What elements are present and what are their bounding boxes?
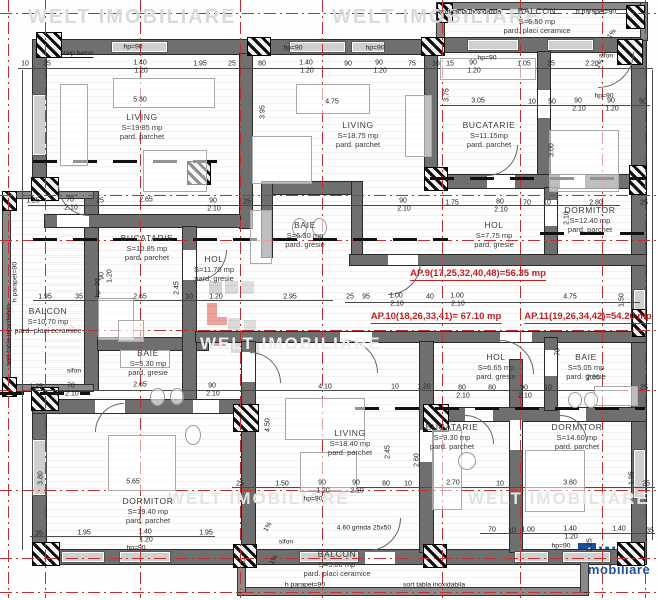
dimension-label: 2.10	[572, 106, 586, 113]
dimension-label: 4.75	[325, 99, 339, 106]
furniture	[405, 95, 432, 157]
furniture	[143, 150, 207, 192]
room-area: S=14.60 mp	[552, 433, 603, 442]
dimension-label: 40	[426, 294, 434, 301]
wall	[352, 182, 362, 257]
room-floor-finish: pard. placi ceramice	[303, 569, 370, 578]
room-floor-finish: pard. parchet	[123, 516, 174, 525]
room-floor-finish: pard. gresie	[474, 240, 514, 249]
window-opening	[120, 552, 170, 562]
dimension-label: 2.65	[133, 294, 147, 301]
dimension-label: 25	[640, 385, 648, 392]
room-label: BUCATARIES=10.85 mppard. parchet	[121, 233, 174, 262]
dimension-label: 80	[488, 385, 496, 392]
dimension-label: 5.30	[133, 97, 147, 104]
annotation-label: stalp beton	[60, 50, 93, 58]
dimension-label: 25	[243, 199, 251, 206]
dimension-label: 90	[209, 198, 217, 205]
room-floor-finish: pard. gresie	[194, 274, 234, 283]
room-label: BALCONS=6.50 mppard. placi ceramice	[503, 6, 570, 35]
room-label: LIVINGS=18.75 mppard. parchet	[336, 120, 380, 149]
concrete-column	[422, 38, 444, 55]
room-area: S=19.85 mp	[120, 123, 164, 132]
dimension-label: 2.80	[589, 200, 603, 207]
dimension-label: 1.05	[517, 61, 531, 68]
dimension-label: 90	[520, 385, 528, 392]
section-line	[33, 238, 448, 241]
dimension-label: 90	[352, 480, 360, 487]
dimension-label: 90	[375, 60, 383, 67]
concrete-column	[33, 543, 59, 565]
dimension-label: 3.80	[38, 471, 45, 485]
fixture	[458, 452, 476, 470]
dimension-label: 1.25	[587, 538, 594, 552]
fixture	[150, 388, 165, 406]
annotation-label: hp=90	[594, 93, 613, 100]
dimension-label: 80	[458, 385, 466, 392]
room-label: DORMITORS=14.60 mppard. parchet	[552, 422, 603, 451]
room-floor-finish: pard. placi ceramice	[14, 326, 81, 335]
room-name: LIVING	[336, 120, 380, 131]
room-label: BALCONS=9.00 mppard. placi ceramice	[303, 549, 370, 578]
dimension-label: 25	[642, 481, 650, 488]
dimension-label: 2.10	[494, 207, 508, 214]
room-area: S=9.30 mp	[426, 433, 479, 442]
dimension-label: 2.70	[446, 480, 460, 487]
room-label: BUCATARIES=11.15mppard. parchet	[463, 120, 516, 149]
dimension-label: 2.10	[350, 488, 364, 495]
concrete-column	[627, 6, 644, 28]
dimension-label: 10	[496, 481, 504, 488]
dimension-label: 15	[446, 61, 454, 68]
concrete-column	[37, 33, 61, 57]
room-name: DORMITOR	[565, 205, 616, 216]
dimension-label: 90	[344, 61, 352, 68]
dimension-label: 2.10	[564, 211, 571, 225]
dimension-label: 10	[528, 99, 536, 106]
room-label: LIVINGS=18.40 mppard. parchet	[328, 428, 372, 457]
dimension-label: 1.20	[467, 68, 481, 75]
dimension-label: 70	[67, 383, 75, 390]
dimension-label: 1.40	[563, 526, 577, 533]
room-label: BAIES=6.30 mppard. gresie	[285, 220, 325, 249]
furniture	[60, 84, 88, 166]
dimension-label: 90	[208, 383, 216, 390]
dimension-label: 1.95	[629, 471, 636, 485]
window-opening	[62, 552, 104, 562]
room-floor-finish: pard. gresie	[128, 368, 168, 377]
dimension-label: 1.20	[139, 537, 153, 544]
dimension-label: 10	[21, 61, 29, 68]
watermark-text: WELT IMOBILIARE	[28, 6, 237, 29]
window-opening	[548, 40, 593, 50]
room-area: S=6.50 mp	[503, 17, 570, 26]
dimension-label: 1.95	[77, 530, 91, 537]
room-area: S=7.75 mp	[474, 231, 514, 240]
dimension-label: 1.00	[450, 293, 464, 300]
room-label: HOLS=11.70 mppard. gresie	[194, 254, 234, 283]
dimension-label: 2.10	[451, 301, 465, 308]
room-name: BALCON	[303, 549, 370, 560]
dimension-label: 1.95	[193, 61, 207, 68]
annotation-label: sort tabla inoxidabila	[6, 304, 13, 366]
section-line	[355, 407, 645, 410]
dimension-line	[30, 536, 215, 537]
room-area: S=6.30 mp	[285, 231, 325, 240]
dimension-line	[18, 68, 653, 69]
dimension-label: 95	[362, 294, 370, 301]
dimension-label: 70	[488, 527, 496, 534]
room-name: DORMITOR	[123, 496, 174, 507]
room-label: DORMITORS=12.40 mppard. parchet	[565, 205, 616, 234]
room-floor-finish: pard. parchet	[463, 140, 516, 149]
annotation-label: hp=90	[303, 496, 322, 503]
dimension-label: 1.40	[299, 60, 313, 67]
dimension-label: 90	[318, 480, 326, 487]
dimension-label: 70	[523, 200, 531, 207]
annotation-label: hp=90	[126, 545, 145, 552]
annotation-label: h parapet=90	[576, 9, 616, 16]
dimension-label: 5.65	[126, 479, 140, 486]
dimension-label: 1.20	[107, 269, 114, 283]
dimension-label: 10	[404, 481, 412, 488]
dimension-label: 4.75	[563, 294, 577, 301]
dimension-label: 25	[43, 61, 51, 68]
room-name: HOL	[474, 220, 514, 231]
room-label: HOLS=6.65 mppard. gresie	[476, 352, 516, 381]
dimension-label: 25	[236, 481, 244, 488]
dimension-label: 1.20	[605, 106, 619, 113]
dimension-label: 2.65	[139, 197, 153, 204]
room-floor-finish: pard. parchet	[120, 132, 164, 141]
dimension-label: 4.10	[318, 384, 332, 391]
room-name: DORMITOR	[552, 422, 603, 433]
dimension-label: 80	[382, 481, 390, 488]
dimension-label: 3.05	[471, 98, 485, 105]
room-name: BALCON	[14, 306, 81, 317]
room-area: S=18.75 mp	[336, 131, 380, 140]
dimension-label: 25	[96, 198, 104, 205]
room-name: HOL	[194, 254, 234, 265]
room-area: S=11.70 mp	[194, 265, 234, 274]
dimension-label: 70	[555, 348, 562, 356]
dimension-label: 10	[544, 385, 552, 392]
door-gap	[193, 400, 219, 413]
room-name: BUCATARIE	[426, 422, 479, 433]
furniture	[252, 136, 312, 184]
annotation-label: hp=90	[477, 55, 496, 62]
dimension-label: 1.00	[521, 527, 535, 534]
room-area: S=19.40 mp	[123, 507, 174, 516]
dimension-label: 1.40	[612, 526, 626, 533]
room-name: BALCON	[503, 6, 570, 17]
concrete-column	[234, 405, 258, 431]
room-floor-finish: pard. parchet	[121, 253, 174, 262]
fixture	[568, 392, 582, 408]
room-floor-finish: pard. parchet	[328, 448, 372, 457]
room-name: LIVING	[328, 428, 372, 439]
dimension-label: 4.50	[265, 418, 272, 432]
room-floor-finish: pard. gresie	[476, 372, 516, 381]
dimension-label: 3.80	[563, 480, 577, 487]
dimension-label: 2.60	[414, 453, 421, 467]
dimension-label: 2.45	[174, 281, 181, 295]
room-floor-finish: pard. parchet	[336, 140, 380, 149]
dimension-label: 90	[399, 198, 407, 205]
dimension-label: 1.20	[134, 68, 148, 75]
watermark-text: WELT IMOBILIARE	[200, 334, 382, 354]
dimension-label: 35	[35, 531, 43, 538]
dimension-label: 2.10	[390, 301, 404, 308]
annotation-label: h parapet=90	[285, 582, 325, 589]
annotation-label: hp=90	[123, 44, 142, 51]
dimension-label: 1.00	[389, 293, 403, 300]
furniture	[108, 435, 176, 491]
furniture	[250, 210, 272, 264]
dimension-label: 90	[469, 60, 477, 67]
room-area: S=18.40 mp	[328, 439, 372, 448]
dimension-line	[652, 70, 653, 540]
dimension-label: 25	[346, 294, 354, 301]
room-area: S=10.70 mp	[14, 317, 81, 326]
door-gap	[57, 215, 89, 227]
dimension-label: 2.95	[283, 294, 297, 301]
room-area: S=5.30 mp	[128, 359, 168, 368]
floor-plan: ✓ welt imobiliare WELT IMOBILIAREWELT IM…	[0, 0, 658, 600]
dimension-label: 10	[543, 200, 551, 207]
annotation-label: hp=90	[283, 45, 302, 52]
dimension-label: 2.10	[397, 206, 411, 213]
room-name: BAIE	[285, 220, 325, 231]
dimension-label: 1.25	[29, 384, 43, 391]
dimension-label: 1.50	[619, 293, 626, 307]
dimension-label: 3.95	[260, 105, 267, 119]
furniture	[549, 130, 619, 192]
concrete-column	[248, 38, 270, 55]
dimension-label: 1.20	[300, 68, 314, 75]
dimension-label: 80	[258, 61, 266, 68]
dimension-label: 10	[508, 528, 516, 535]
annotation-label: hp=90	[95, 278, 102, 297]
window-opening	[468, 40, 518, 50]
dimension-label: 90	[574, 98, 582, 105]
dimension-label: 1.20	[373, 68, 387, 75]
room-floor-finish: pard. parchet	[552, 442, 603, 451]
apartment-area-label: AP.10(18,26,33,41)= 67.10 mp	[371, 311, 502, 324]
dimension-label: 35	[75, 294, 83, 301]
dimension-label: 1.20	[209, 294, 223, 301]
annotation-label: h parapet=90	[12, 262, 19, 302]
room-label: BUCATARIES=9.30 mppard. parchet	[426, 422, 479, 451]
room-area: S=9.00 mp	[303, 560, 370, 569]
room-area: S=12.40 mp	[565, 216, 616, 225]
room-name: BAIE	[128, 348, 168, 359]
dimension-label: 3.00	[549, 143, 556, 157]
furniture	[594, 386, 638, 406]
dimension-label: 10	[391, 384, 399, 391]
dimension-label: 2.65	[133, 382, 147, 389]
dimension-label: 1.40	[133, 60, 147, 67]
room-area: S=10.85 mp	[121, 244, 174, 253]
axis-line-horizontal	[0, 195, 656, 196]
dimension-label: 2.10	[206, 391, 220, 398]
dimension-label: 25	[228, 61, 236, 68]
annotation-label: sifon	[279, 539, 293, 546]
dimension-label: 1.50	[275, 481, 289, 488]
dimension-label: 35	[646, 528, 654, 535]
dimension-label: 2.45	[385, 445, 392, 459]
room-label: BAIES=5.30 mppard. gresie	[128, 348, 168, 377]
apartment-area-label: AP.9(17,25,32,40,48)=56.35 mp	[410, 268, 546, 281]
room-name: BUCATARIE	[463, 120, 516, 131]
dimension-label: 2.10	[518, 393, 532, 400]
room-floor-finish: pard. placi ceramice	[503, 26, 570, 35]
dimension-label: 1.75	[445, 200, 459, 207]
dimension-label: 1.20	[417, 384, 431, 391]
dimension-label: 35	[547, 61, 555, 68]
dimension-label: 1.20	[564, 534, 578, 541]
room-area: S=6.65 mp	[476, 363, 516, 372]
dimension-label: 1.40	[138, 529, 152, 536]
fixture	[185, 425, 201, 445]
dimension-label: 60	[241, 558, 248, 566]
room-floor-finish: pard. parchet	[565, 225, 616, 234]
annotation-label: hp=90	[365, 45, 384, 52]
concrete-column	[618, 543, 644, 565]
axis-line-horizontal	[0, 592, 656, 593]
furniture	[113, 78, 215, 108]
room-name: HOL	[476, 352, 516, 363]
dimension-label: 10	[185, 294, 193, 301]
furniture	[118, 320, 144, 342]
dimension-label: 50	[639, 99, 647, 106]
concrete-column	[630, 166, 646, 194]
room-area: S=11.15mp	[463, 131, 516, 140]
annotation-label: 4.60 grinda 25x50	[337, 525, 391, 532]
annotation-label: sifon	[67, 368, 81, 375]
room-name: BUCATARIE	[121, 233, 174, 244]
dimension-label: 1.95	[38, 294, 52, 301]
dimension-label: 1.20	[316, 488, 330, 495]
dimension-label: 1.95	[199, 530, 213, 537]
dimension-label: 2.10	[65, 391, 79, 398]
dimension-label: 1.25	[26, 198, 40, 205]
room-name: BAIE	[566, 352, 606, 363]
room-label: LIVINGS=19.85 mppard. parchet	[120, 112, 164, 141]
room-floor-finish: pard. gresie	[285, 240, 325, 249]
axis-line-vertical	[8, 0, 9, 598]
dimension-label: 2.10	[456, 393, 470, 400]
room-label: BALCONS=10.70 mppard. placi ceramice	[14, 306, 81, 335]
annotation-label: sort tabla inoxidabila	[403, 582, 465, 589]
dimension-label: 75	[408, 61, 416, 68]
dimension-label: 3.75	[444, 88, 451, 102]
room-label: HOLS=7.75 mppard. gresie	[474, 220, 514, 249]
dimension-line	[28, 205, 620, 206]
room-name: LIVING	[120, 112, 164, 123]
dimension-label: 80	[496, 199, 504, 206]
dimension-label: 2.10	[207, 206, 221, 213]
watermark-text: WELT IMOBILIARE	[468, 489, 650, 509]
room-label: DORMITORS=19.40 mppard. parchet	[123, 496, 174, 525]
room-floor-finish: pard. parchet	[426, 442, 479, 451]
annotation-label: sort tabla inoxidabila	[439, 9, 501, 16]
fixture	[170, 388, 184, 405]
fixture	[584, 392, 598, 408]
dimension-label: 50	[548, 99, 556, 106]
annotation-label: hp=90	[551, 543, 570, 550]
dimension-label: 25	[640, 200, 648, 207]
dimension-label: 2.80	[586, 375, 600, 382]
dimension-label: 70	[66, 197, 74, 204]
dimension-label: 16	[432, 61, 440, 68]
room-area: S=5.05 mp	[566, 363, 606, 372]
apartment-area-label: AP.11(19,26,34,42)=54.20 mp	[524, 311, 651, 324]
furniture	[300, 452, 357, 492]
dimension-label: 2.10	[64, 205, 78, 212]
